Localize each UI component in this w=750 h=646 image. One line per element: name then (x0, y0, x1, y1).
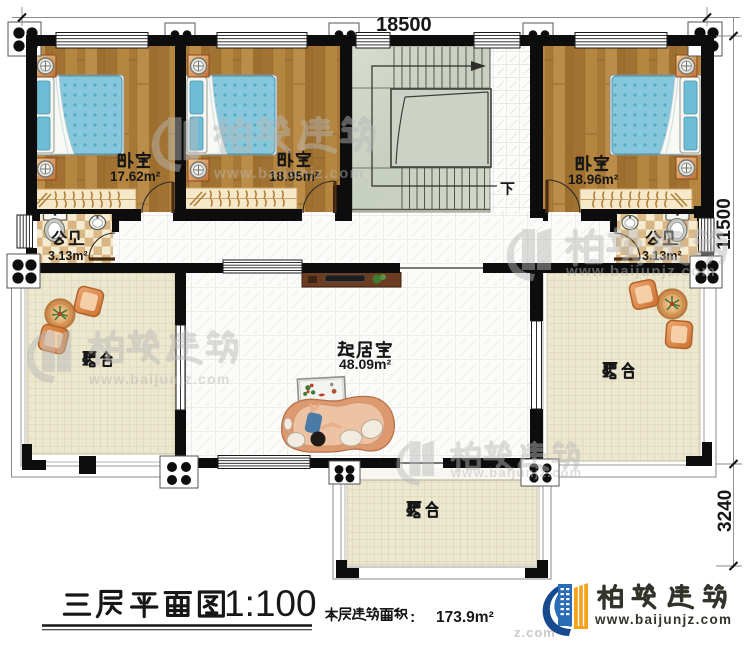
svg-text:1:100: 1:100 (224, 583, 317, 624)
svg-text:17.62m²: 17.62m² (110, 169, 161, 184)
svg-text:173.9m²: 173.9m² (436, 609, 494, 626)
svg-text:www.baijunjz.com: www.baijunjz.com (565, 263, 716, 280)
svg-text:www.baijunjz.com: www.baijunjz.com (88, 371, 231, 387)
svg-text:www.baijunjz.com: www.baijunjz.com (213, 165, 364, 182)
svg-text:3240: 3240 (715, 490, 736, 532)
svg-text::: : (410, 609, 415, 626)
svg-text:www.baijunjz.com: www.baijunjz.com (594, 612, 732, 627)
svg-text:48.09m²: 48.09m² (339, 356, 391, 372)
svg-text:www.baijunjz.com: www.baijunjz.com (450, 465, 582, 480)
svg-text:3.13m²: 3.13m² (48, 249, 88, 263)
svg-text:18500: 18500 (376, 14, 432, 36)
svg-text:18.96m²: 18.96m² (568, 172, 619, 187)
